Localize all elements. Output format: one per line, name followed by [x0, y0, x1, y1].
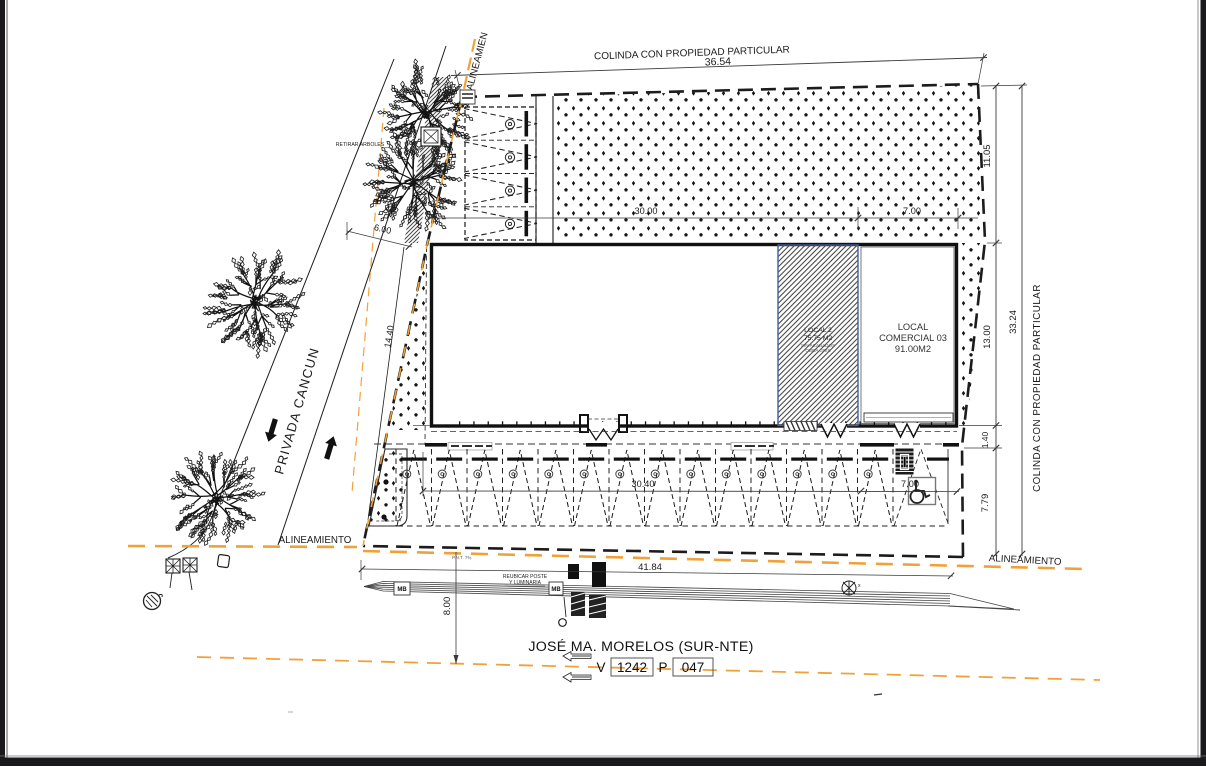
svg-text:30.00: 30.00 — [635, 206, 658, 216]
svg-text:JOSÉ MA. MORELOS (SUR-NTE): JOSÉ MA. MORELOS (SUR-NTE) — [528, 638, 753, 655]
svg-text:36.54: 36.54 — [705, 56, 732, 69]
svg-text:MB: MB — [397, 587, 407, 593]
svg-text:ALINEAMIENTO: ALINEAMIENTO — [279, 535, 352, 546]
svg-text:1242: 1242 — [617, 660, 647, 675]
svg-text:11.05: 11.05 — [982, 144, 993, 167]
svg-text:P: P — [658, 660, 667, 675]
svg-text:LOCAL 2: LOCAL 2 — [804, 327, 832, 334]
svg-text:COMERCIAL 03: COMERCIAL 03 — [879, 333, 947, 343]
svg-text:COLINDA CON PROPIEDAD PARTICUL: COLINDA CON PROPIEDAD PARTICULAR — [1032, 284, 1043, 492]
svg-text:V: V — [596, 660, 605, 675]
svg-text:33.24: 33.24 — [1008, 310, 1019, 334]
svg-text:P.N.T. 7%: P.N.T. 7% — [452, 555, 472, 560]
svg-text:Y LUMINARIA: Y LUMINARIA — [509, 580, 542, 586]
svg-text:8.00: 8.00 — [442, 597, 453, 616]
svg-text:13.00: 13.00 — [982, 325, 993, 349]
svg-text:LOCAL: LOCAL — [898, 322, 929, 332]
svg-text:047: 047 — [682, 660, 705, 675]
svg-text:41.84: 41.84 — [638, 562, 662, 573]
svg-text:7.00: 7.00 — [903, 206, 921, 216]
svg-text:7.79: 7.79 — [980, 494, 991, 513]
svg-text:91.00M2: 91.00M2 — [895, 344, 931, 354]
svg-text:30.40: 30.40 — [632, 479, 655, 489]
svg-text:1.40: 1.40 — [980, 431, 990, 448]
svg-text:7.00: 7.00 — [901, 479, 919, 489]
svg-text:OBRA GRIS: OBRA GRIS — [805, 348, 830, 353]
svg-text:RETIRAR ARBOLES: RETIRAR ARBOLES — [336, 142, 385, 148]
svg-text:MB: MB — [551, 587, 561, 593]
svg-text:75.75 M2: 75.75 M2 — [804, 335, 833, 342]
